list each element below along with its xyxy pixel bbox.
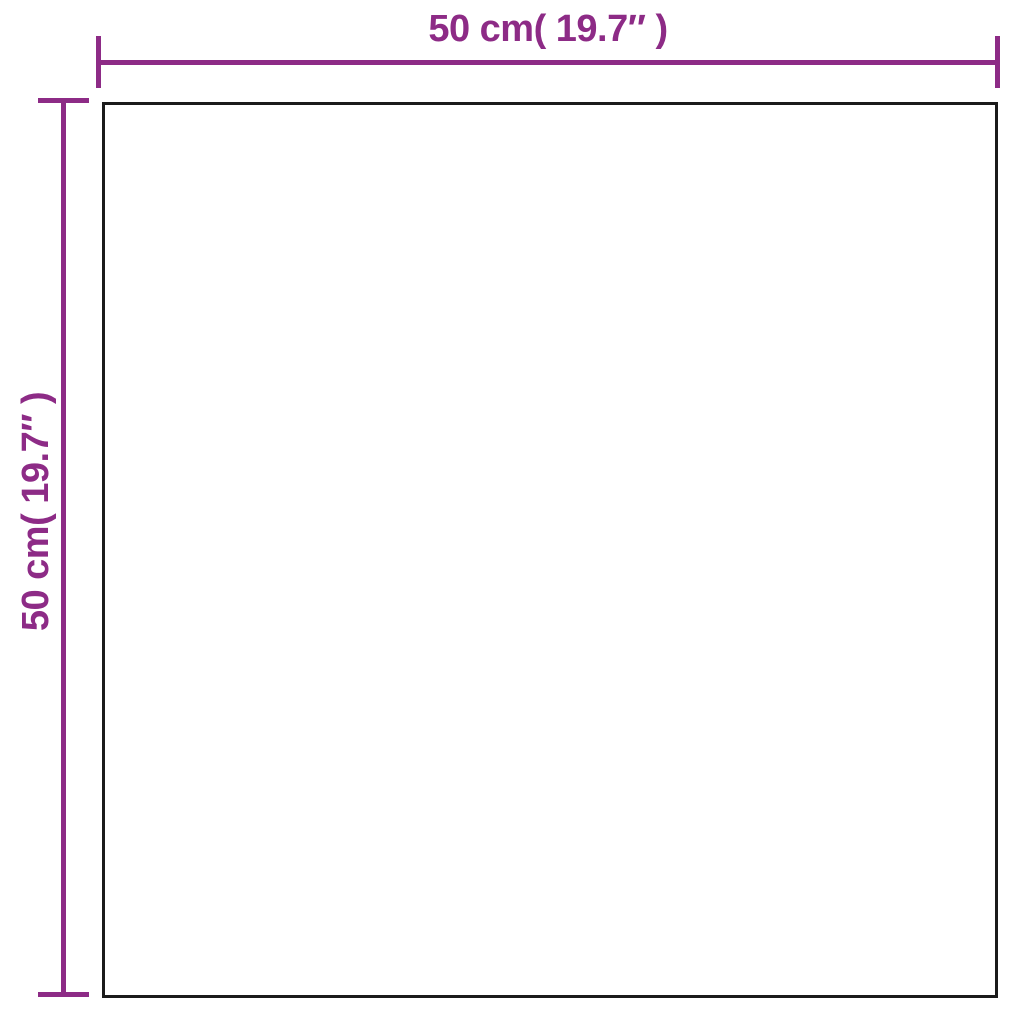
height-dimension-line: [61, 98, 66, 997]
product-outline: [102, 102, 998, 998]
height-dimension-tick-bottom: [38, 992, 89, 997]
width-dimension-label: 50 cm( 19.7″ ): [96, 8, 1000, 51]
width-dimension-line: [96, 60, 1000, 65]
height-dimension-label: 50 cm( 19.7″ ): [15, 391, 58, 630]
height-dimension-label-container: 50 cm( 19.7″ ): [14, 98, 59, 924]
dimension-diagram: 50 cm( 19.7″ ) 50 cm( 19.7″ ): [0, 0, 1024, 1024]
